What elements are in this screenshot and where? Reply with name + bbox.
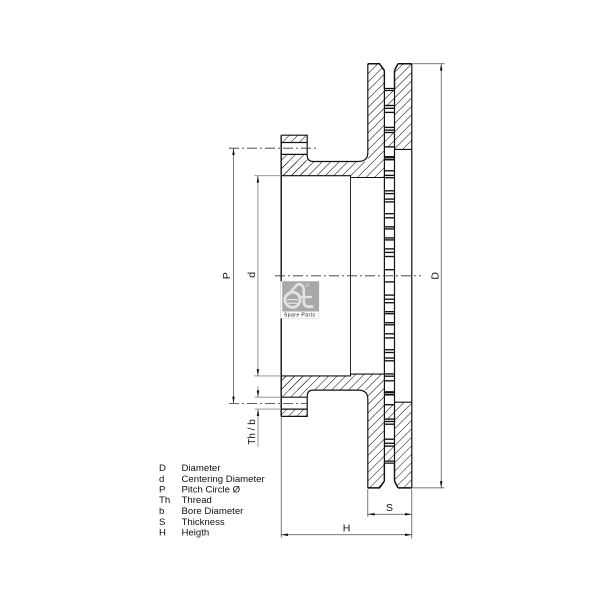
svg-text:b: b — [159, 506, 164, 517]
svg-text:P: P — [221, 272, 233, 279]
svg-text:Diameter: Diameter — [182, 463, 222, 474]
svg-text:d: d — [246, 272, 258, 278]
svg-text:Centering Diameter: Centering Diameter — [182, 474, 266, 485]
svg-text:d: d — [159, 474, 164, 485]
svg-text:Th: Th — [159, 495, 170, 506]
svg-text:D: D — [159, 463, 166, 474]
svg-text:H: H — [343, 523, 351, 535]
svg-text:Thickness: Thickness — [182, 517, 225, 528]
svg-text:Th / b: Th / b — [247, 419, 258, 445]
svg-text:Spare Parts: Spare Parts — [284, 313, 315, 319]
svg-text:D: D — [430, 272, 442, 280]
svg-text:S: S — [386, 502, 393, 514]
svg-text:Bore Diameter: Bore Diameter — [182, 506, 245, 517]
svg-text:P: P — [159, 485, 165, 496]
svg-text:H: H — [159, 528, 166, 539]
svg-text:Thread: Thread — [182, 495, 212, 506]
svg-text:Pitch Circle Ø: Pitch Circle Ø — [182, 485, 241, 496]
svg-text:S: S — [159, 517, 165, 528]
svg-text:Heigth: Heigth — [182, 528, 210, 539]
